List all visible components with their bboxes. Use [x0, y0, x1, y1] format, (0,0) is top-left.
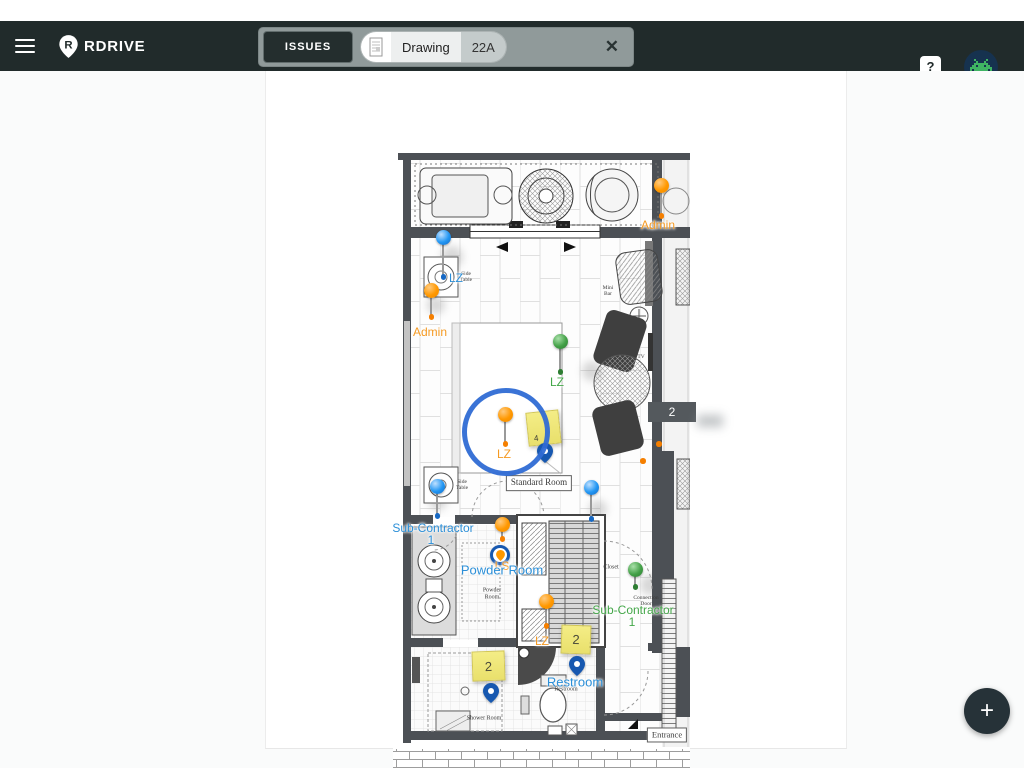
- drawing-thumbnail-icon: [361, 32, 391, 62]
- room-label-entrance: Entrance: [647, 727, 687, 742]
- grid-tag: 2: [648, 402, 696, 422]
- room-label-closet: Closet: [603, 565, 618, 572]
- app-logo: R RDRIVE: [58, 34, 145, 59]
- room-label-standard-room: Standard Room: [506, 475, 572, 491]
- room-label-mini-bar: Mini Bar: [599, 285, 617, 297]
- tab-badge: 22A: [461, 32, 506, 62]
- add-issue-button[interactable]: +: [964, 688, 1010, 734]
- pin-label: Restroom: [547, 675, 603, 690]
- sticky-note[interactable]: 2: [561, 624, 592, 654]
- tab-drawing-22a[interactable]: Drawing 22A: [361, 32, 506, 62]
- pin-label: LZ: [550, 375, 564, 389]
- svg-text:R: R: [64, 39, 72, 51]
- room-label-shower-room: Shower Room: [467, 716, 502, 723]
- room-label-side-table-2: Side Table: [451, 479, 473, 491]
- issue-pin-blue[interactable]: [584, 480, 599, 520]
- pin-label: Admin: [641, 218, 675, 232]
- tab-label: Drawing: [391, 32, 461, 62]
- room-label-tv: TV: [637, 354, 644, 360]
- tab-strip: ISSUES Drawing 22A ✕: [258, 27, 634, 67]
- small-orange-dot: [656, 441, 662, 447]
- close-tab-icon[interactable]: ✕: [601, 28, 623, 66]
- issue-pin-orange[interactable]: [654, 178, 669, 217]
- small-orange-dot: [640, 458, 646, 464]
- place-marker-icon[interactable]: [569, 656, 585, 676]
- pin-label: Admin: [413, 325, 447, 339]
- drawing-canvas[interactable]: Standard Room Side Table Side Table Mini…: [0, 71, 1024, 768]
- issues-button[interactable]: ISSUES: [263, 31, 353, 63]
- hamburger-menu-icon[interactable]: [15, 39, 35, 53]
- issue-pin-orange[interactable]: [495, 517, 510, 540]
- place-marker-icon[interactable]: [483, 683, 499, 703]
- sticky-note-text: 2: [484, 658, 492, 673]
- pin-label: LZ: [449, 271, 463, 285]
- sticky-note[interactable]: 2: [471, 650, 505, 681]
- issue-pin-orange[interactable]: [539, 594, 554, 627]
- plus-icon: +: [980, 697, 994, 724]
- issue-pin-blue[interactable]: [430, 479, 445, 517]
- selected-pin-highlight-ring: [462, 388, 550, 476]
- pin-label: 1: [428, 533, 435, 547]
- issue-pin-orange[interactable]: [424, 283, 439, 318]
- app-header: R RDRIVE ISSUES Drawing 22A ✕ ?: [0, 21, 1024, 71]
- issue-pin-green[interactable]: [553, 334, 568, 373]
- sticky-note-text: 2: [572, 631, 580, 646]
- pin-label: 1: [629, 615, 636, 629]
- smudge-decoration: [697, 415, 723, 427]
- room-label-powder-room-small: Powder Room: [478, 587, 506, 600]
- rdrive-pin-icon: R: [58, 34, 79, 59]
- logo-text: RDRIVE: [84, 38, 145, 55]
- pin-label: Powder Room: [461, 563, 543, 578]
- pin-label: LZ: [535, 634, 549, 648]
- issue-pin-green[interactable]: [628, 562, 643, 588]
